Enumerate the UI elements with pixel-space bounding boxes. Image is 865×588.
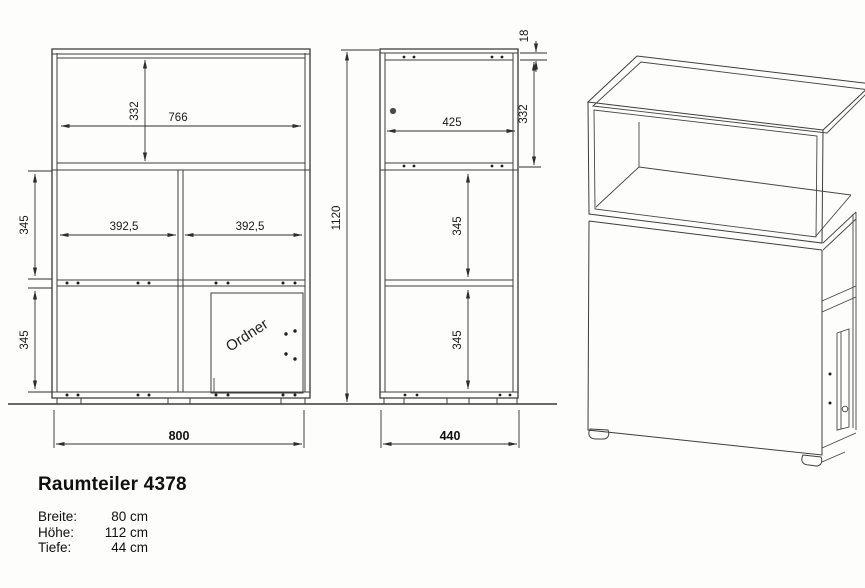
spec-row-breite: Breite: 80 cm [38, 509, 187, 525]
front-dim-middle-row-height: 345 [19, 215, 31, 234]
spec-row-hoehe: Höhe: 112 cm [38, 525, 187, 541]
perspective-shelf-interior [596, 122, 851, 236]
side-elevation-drawing: 425 345 345 18 332 1120 440 [331, 30, 547, 448]
title-block: Raumteiler 4378 Breite: 80 cm Höhe: 112 … [38, 474, 187, 556]
front-dim-top-inner-height: 332 [129, 101, 141, 120]
perspective-drawing [588, 56, 865, 466]
front-carcass-outline [52, 49, 310, 398]
spec-value-tiefe: 44 cm [100, 540, 148, 556]
side-carcass-panels [380, 53, 518, 392]
front-dim-right-compartment-width: 392,5 [236, 221, 265, 233]
front-dim-top-inner-width: 766 [168, 112, 187, 124]
perspective-mid-band [589, 221, 822, 250]
spec-label-breite: Breite: [38, 509, 100, 525]
side-dim-bottom-row-height: 345 [452, 330, 464, 349]
front-dimensions: 332 766 345 345 392,5 392,5 800 [19, 60, 304, 448]
spec-label-hoehe: Höhe: [38, 525, 100, 541]
front-dim-bottom-row-height: 345 [19, 330, 31, 349]
product-title: Raumteiler 4378 [38, 474, 187, 496]
spec-value-hoehe: 112 cm [100, 525, 148, 541]
side-dim-top-panel-thickness: 18 [519, 30, 531, 43]
front-feet [57, 398, 305, 404]
perspective-lower-front-panel [588, 221, 822, 455]
perspective-top-face-inner [593, 62, 865, 133]
spec-label-tiefe: Tiefe: [38, 540, 100, 556]
side-dim-middle-row-height: 345 [452, 216, 464, 235]
front-dim-left-compartment-width: 392,5 [110, 221, 139, 233]
side-dim-inner-depth: 425 [442, 117, 461, 129]
side-dim-total-depth: 440 [440, 429, 461, 443]
spec-table: Breite: 80 cm Höhe: 112 cm Tiefe: 44 cm [38, 509, 187, 556]
perspective-open-shelf-inner [594, 110, 817, 237]
front-carcass-panels [52, 53, 310, 392]
front-dim-total-width: 800 [169, 429, 190, 443]
perspective-ordner-binder [837, 329, 849, 430]
technical-drawing-sheet: Ordner 332 766 345 345 392,5 392,5 800 [0, 0, 865, 588]
binder-finger-hole [842, 406, 848, 412]
side-dimensions: 425 345 345 18 332 1120 440 [331, 30, 547, 448]
side-dim-top-inner-height: 332 [518, 104, 530, 123]
side-feet [384, 398, 517, 404]
perspective-top-face [588, 56, 865, 130]
spec-row-tiefe: Tiefe: 44 cm [38, 540, 187, 556]
perspective-right-side [822, 212, 856, 462]
side-cam-hole [390, 108, 396, 114]
side-carcass-outline [380, 49, 518, 398]
side-dim-total-height: 1120 [331, 206, 343, 231]
spec-value-breite: 80 cm [100, 509, 148, 525]
front-elevation-drawing: Ordner 332 766 345 345 392,5 392,5 800 [19, 49, 310, 448]
front-ordner-door: Ordner [211, 293, 303, 393]
front-shelf-fittings [66, 282, 297, 397]
perspective-feet [589, 429, 822, 466]
ordner-door-label: Ordner [223, 316, 271, 356]
